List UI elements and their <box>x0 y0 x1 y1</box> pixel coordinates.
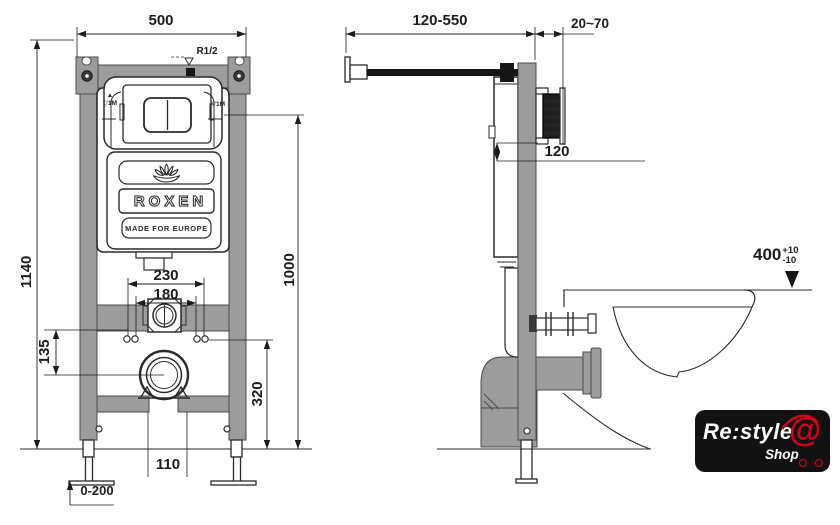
level-mark-text: ▽1M <box>206 101 230 109</box>
flush-plate-housing <box>104 77 222 149</box>
at-cart-icon: @ <box>789 410 821 450</box>
cart-wheel-icon <box>815 459 823 467</box>
frame-post-left <box>80 62 97 440</box>
hanger-slot-right <box>235 57 244 65</box>
bowl-height-value: 400 <box>753 246 781 263</box>
level-triangle-mark <box>785 271 799 288</box>
inlet-triangle-mark <box>185 58 193 65</box>
outlet-connector <box>533 357 583 390</box>
installation-frame-drawing: 500 1140 R1/2 ▲ ▽1M ▽1M ROXEN MADE FOR E… <box>0 0 840 525</box>
dim-overall-width: 500 <box>126 13 196 29</box>
logo-brand-sub: Shop <box>765 447 799 462</box>
hanger-slot-left <box>82 57 91 65</box>
side-foot-plate <box>516 479 537 483</box>
dim-water-level-height: 1000 <box>282 235 298 305</box>
dim-fixing-outer: 230 <box>146 268 186 284</box>
side-post-knob <box>524 428 530 434</box>
side-post <box>518 63 536 440</box>
water-supply-pipe <box>529 312 596 336</box>
post-knob-left <box>96 426 102 432</box>
side-foot <box>521 440 532 481</box>
dim-overall-height: 1140 <box>19 242 35 302</box>
cart-wheel-icon <box>799 459 807 467</box>
dim-arm-depth: 120-550 <box>398 13 482 29</box>
dim-leg-adjust: 0-200 <box>74 484 120 498</box>
front-view-drawing <box>20 27 312 505</box>
dim-drain-gap: 110 <box>148 457 188 473</box>
flush-pipe-down <box>505 268 518 357</box>
side-cistern <box>489 77 518 357</box>
dim-bowl-height: 400 +10 -10 <box>753 246 799 266</box>
flush-seal-block <box>543 94 560 138</box>
frame-post-right <box>229 62 246 440</box>
fixing-holes <box>124 336 208 342</box>
level-arrow: ▲ <box>98 92 122 100</box>
label-water-inlet: R1/2 <box>186 47 228 58</box>
level-mark-right: ▽1M <box>206 101 230 109</box>
dim-plate-depth: 120 <box>540 144 574 160</box>
drain-fitting <box>143 299 186 332</box>
level-mark-left: ▲ ▽1M <box>98 92 122 108</box>
dim-outlet-offset: 320 <box>250 369 266 419</box>
drain-elbow <box>481 348 601 447</box>
flush-unit <box>536 88 565 144</box>
wall-arm <box>345 57 518 82</box>
bowl-height-tol-minus: -10 <box>782 256 798 266</box>
brand-name: ROXEN <box>119 189 218 213</box>
dim-fixing-inner: 180 <box>146 287 186 303</box>
dim-wall-finish: 20~70 <box>564 17 616 31</box>
logo-brand-main: Re:style <box>703 419 793 445</box>
dim-bracket-spacing: 135 <box>37 330 53 374</box>
post-knob-right <box>224 426 230 432</box>
neck-flange <box>136 252 172 258</box>
brand-tagline: MADE FOR EUROPE <box>122 218 211 238</box>
restyle-shop-logo: Re:style @ Shop <box>695 410 830 472</box>
level-mark-text: ▽1M <box>98 100 122 108</box>
inlet-position-mark <box>186 68 195 76</box>
